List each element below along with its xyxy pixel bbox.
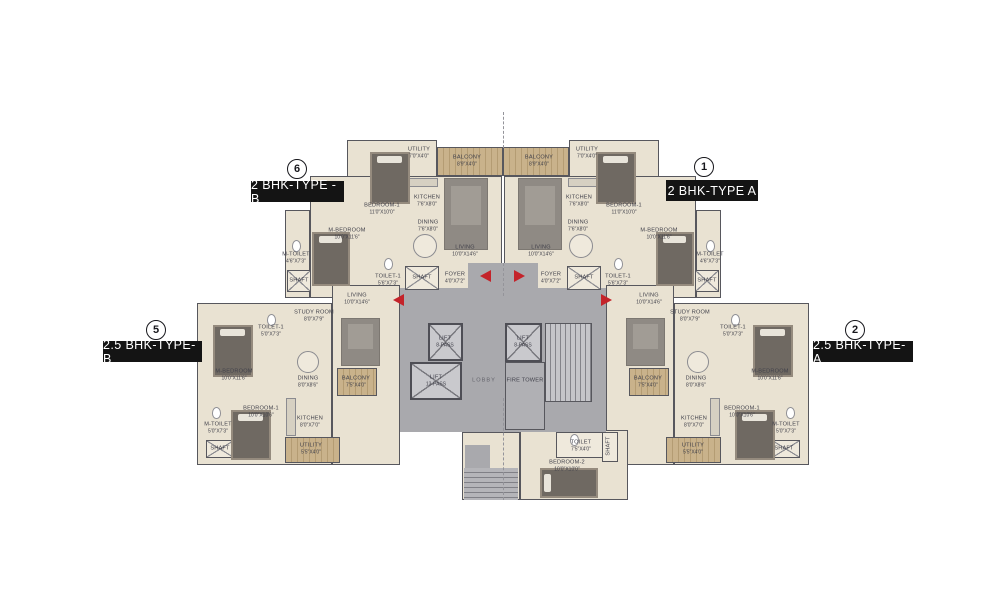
room-dimensions: 10'0"X14'6" bbox=[452, 251, 477, 257]
room-label: TOILET-15'6"X7'3" bbox=[605, 274, 631, 287]
room-dimensions: 7'5"X4'0" bbox=[634, 382, 662, 388]
bed-pillow bbox=[544, 474, 551, 492]
room-name: SHAFT bbox=[574, 275, 593, 282]
room-name: M-TOILET bbox=[282, 252, 310, 259]
room-name: TOILET-1 bbox=[258, 325, 284, 332]
room-label: LIFT13-PASS bbox=[426, 375, 446, 388]
living-carpet bbox=[444, 178, 488, 250]
room-label: STUDY ROOM8'0"X7'9" bbox=[670, 310, 710, 323]
room-label: LIVING10'0"X14'6" bbox=[344, 293, 369, 306]
room-name: TOILET-1 bbox=[605, 274, 631, 281]
room-dimensions: 10'0"X11'6" bbox=[751, 375, 788, 381]
kitchen-counter bbox=[710, 398, 720, 436]
room-dimensions: 5'6"X7'3" bbox=[375, 280, 401, 286]
room-dimensions: 5'5"X4'0" bbox=[682, 449, 704, 455]
room-label: M-TOILET5'0"X7'3" bbox=[772, 422, 800, 435]
room-dimensions: 4'6"X7'3" bbox=[696, 258, 724, 264]
room-label: LIFT8-PASS bbox=[436, 336, 453, 349]
room-label: M-TOILET4'6"X7'3" bbox=[282, 252, 310, 265]
room-name: DINING bbox=[686, 376, 707, 383]
room-label: SHAFT bbox=[412, 275, 431, 282]
room-name: BEDROOM-1 bbox=[606, 203, 642, 210]
room-dimensions: 4'0"X7'2" bbox=[445, 278, 465, 284]
room-name: M-TOILET bbox=[696, 252, 724, 259]
entry-arrow bbox=[393, 294, 404, 306]
entry-arrow bbox=[514, 270, 525, 282]
room-dimensions: 10'0"X10'6" bbox=[243, 412, 279, 418]
room-label: UTILITY7'0"X4'0" bbox=[576, 147, 598, 160]
room-label: M-TOILET4'6"X7'3" bbox=[696, 252, 724, 265]
bed-pillow bbox=[377, 156, 401, 163]
room-name: SHAFT bbox=[289, 278, 308, 285]
room-label: M-BEDROOM10'0"X11'6" bbox=[640, 228, 677, 241]
room-name: LIVING bbox=[452, 245, 477, 252]
room-dimensions: 11'0"X10'0" bbox=[606, 209, 642, 215]
room-label: BEDROOM-110'0"X10'6" bbox=[243, 406, 279, 419]
room-name: DINING bbox=[418, 220, 439, 227]
room-name: M-BEDROOM bbox=[751, 369, 788, 376]
room-name: M-BEDROOM bbox=[328, 228, 365, 235]
room-name: LIFT bbox=[436, 336, 453, 343]
room-label: SHAFT bbox=[210, 446, 229, 453]
living-carpet bbox=[341, 318, 380, 366]
room-name: FOYER bbox=[541, 272, 561, 279]
room-name: SHAFT bbox=[210, 446, 229, 453]
room-name: BALCONY bbox=[634, 376, 662, 383]
bed-pillow bbox=[603, 156, 627, 163]
room-label: KITCHEN8'0"X7'0" bbox=[681, 416, 707, 429]
room-label: DINING7'6"X8'0" bbox=[418, 220, 439, 233]
unit-type-text: 2 BHK-TYPE -B bbox=[251, 178, 344, 206]
room-label: SHAFT bbox=[697, 278, 716, 285]
room-name: BALCONY bbox=[342, 376, 370, 383]
room-name: BEDROOM-1 bbox=[243, 406, 279, 413]
room-label: SHAFT bbox=[606, 436, 613, 455]
dining-table bbox=[687, 351, 709, 373]
room-name: FOYER bbox=[445, 272, 465, 279]
unit-type-text: 2 BHK-TYPE A bbox=[668, 184, 757, 198]
room-dimensions: 5'0"X7'3" bbox=[204, 428, 232, 434]
toilet-fixture bbox=[212, 407, 221, 419]
bed bbox=[540, 468, 598, 498]
room-name: SHAFT bbox=[774, 446, 793, 453]
center-dashed-line bbox=[503, 398, 504, 500]
room-name: SHAFT bbox=[697, 278, 716, 285]
unit-type-label: 2 BHK-TYPE A bbox=[666, 180, 758, 201]
toilet-fixture bbox=[706, 240, 715, 252]
room-dimensions: 10'0"X14'6" bbox=[344, 299, 369, 305]
room-name: DINING bbox=[298, 376, 319, 383]
room-dimensions: 8'0"X8'6" bbox=[298, 382, 319, 388]
unit-type-text: 2.5 BHK-TYPE-A bbox=[813, 338, 913, 366]
room-name: LIFT bbox=[514, 336, 531, 343]
fire-tower-room bbox=[505, 362, 545, 430]
room-label: LIFT8-PASS bbox=[514, 336, 531, 349]
bed bbox=[370, 152, 410, 204]
lower-staircase bbox=[464, 468, 518, 500]
room-label: KITCHEN7'6"X8'0" bbox=[414, 195, 440, 208]
toilet-fixture bbox=[292, 240, 301, 252]
room-dimensions: 10'0"X11'6" bbox=[215, 375, 252, 381]
toilet-fixture bbox=[786, 407, 795, 419]
room-label: BEDROOM-210'0"X10'0" bbox=[549, 460, 585, 473]
room-dimensions: 5'0"X7'3" bbox=[772, 428, 800, 434]
room-label: UTILITY5'5"X4'0" bbox=[682, 443, 704, 456]
room-dimensions: 10'0"X14'6" bbox=[636, 299, 661, 305]
room-dimensions: 10'0"X10'0" bbox=[549, 466, 585, 472]
room-name: UTILITY bbox=[682, 443, 704, 450]
room-label: BALCONY7'5"X4'0" bbox=[634, 376, 662, 389]
room-label: UTILITY7'0"X4'0" bbox=[408, 147, 430, 160]
entry-arrow bbox=[601, 294, 612, 306]
room-label: M-BEDROOM10'0"X11'6" bbox=[215, 369, 252, 382]
room-dimensions: 5'0"X7'3" bbox=[258, 331, 284, 337]
room-label: DINING8'0"X8'6" bbox=[686, 376, 707, 389]
room-label: DINING8'0"X8'6" bbox=[298, 376, 319, 389]
room-name: TOILET bbox=[571, 440, 592, 447]
room-dimensions: 4'0"X7'2" bbox=[541, 278, 561, 284]
room-dimensions: 5'5"X4'0" bbox=[300, 449, 322, 455]
unit-number-badge: 6 bbox=[287, 159, 307, 179]
room-name: UTILITY bbox=[576, 147, 598, 154]
room-name: SHAFT bbox=[606, 436, 613, 455]
room-name: LIVING bbox=[636, 293, 661, 300]
room-label: LIVING10'0"X14'6" bbox=[636, 293, 661, 306]
unit-type-text: 2.5 BHK-TYPE-B bbox=[103, 338, 202, 366]
room-name: BALCONY bbox=[453, 155, 481, 162]
room-dimensions: 7'5"X4'0" bbox=[571, 446, 592, 452]
room-label: LOBBY bbox=[472, 378, 496, 385]
room-name: M-BEDROOM bbox=[640, 228, 677, 235]
room-name: UTILITY bbox=[408, 147, 430, 154]
room-dimensions: 7'6"X8'0" bbox=[568, 226, 589, 232]
room-label: KITCHEN8'0"X7'0" bbox=[297, 416, 323, 429]
room-label: BEDROOM-111'0"X10'0" bbox=[606, 203, 642, 216]
living-carpet bbox=[626, 318, 665, 366]
room-label: M-BEDROOM10'0"X11'6" bbox=[328, 228, 365, 241]
staircase bbox=[545, 323, 592, 402]
unit-type-label: 2.5 BHK-TYPE-B bbox=[103, 341, 202, 362]
room-name: BALCONY bbox=[525, 155, 553, 162]
room-name: TOILET-1 bbox=[375, 274, 401, 281]
dining-table bbox=[297, 351, 319, 373]
room-label: FIRE TOWER bbox=[507, 378, 544, 385]
room-dimensions: 13-PASS bbox=[426, 381, 446, 387]
room-name: M-TOILET bbox=[772, 422, 800, 429]
room-label: FOYER4'0"X7'2" bbox=[541, 272, 561, 285]
room-dimensions: 8'9"X4'0" bbox=[453, 161, 481, 167]
toilet-fixture bbox=[384, 258, 393, 270]
center-dashed-line bbox=[503, 263, 504, 296]
room-name: BEDROOM-1 bbox=[364, 203, 400, 210]
room-name: TOILET-1 bbox=[720, 325, 746, 332]
room-label: TOILET-15'6"X7'3" bbox=[375, 274, 401, 287]
toilet-fixture bbox=[614, 258, 623, 270]
kitchen-counter bbox=[286, 398, 296, 436]
room-dimensions: 8'0"X7'9" bbox=[294, 316, 334, 322]
unit-number-badge: 1 bbox=[694, 157, 714, 177]
bed bbox=[596, 152, 636, 204]
room-label: BEDROOM-110'0"X10'6" bbox=[724, 406, 760, 419]
dining-table bbox=[569, 234, 593, 258]
room-dimensions: 8'0"X7'0" bbox=[297, 422, 323, 428]
room-dimensions: 10'0"X14'6" bbox=[528, 251, 553, 257]
room-label: TOILET-15'0"X7'3" bbox=[258, 325, 284, 338]
room-dimensions: 8'0"X7'0" bbox=[681, 422, 707, 428]
room-dimensions: 5'0"X7'3" bbox=[720, 331, 746, 337]
room-dimensions: 8-PASS bbox=[436, 342, 453, 348]
bed-pillow bbox=[220, 329, 244, 336]
room-name: KITCHEN bbox=[297, 416, 323, 423]
room-label: SHAFT bbox=[774, 446, 793, 453]
room-name: STUDY ROOM bbox=[294, 310, 334, 317]
room-dimensions: 7'0"X4'0" bbox=[576, 153, 598, 159]
room-dimensions: 10'0"X10'6" bbox=[724, 412, 760, 418]
living-carpet bbox=[518, 178, 562, 250]
kitchen-counter bbox=[406, 178, 438, 187]
room-dimensions: 4'6"X7'3" bbox=[282, 258, 310, 264]
room-dimensions: 10'0"X11'6" bbox=[328, 234, 365, 240]
room-dimensions: 7'5"X4'0" bbox=[342, 382, 370, 388]
room-label: BALCONY8'9"X4'0" bbox=[525, 155, 553, 168]
room-dimensions: 8'0"X8'6" bbox=[686, 382, 707, 388]
room-dimensions: 8'9"X4'0" bbox=[525, 161, 553, 167]
room-dimensions: 5'6"X7'3" bbox=[605, 280, 631, 286]
room-dimensions: 7'6"X8'0" bbox=[414, 201, 440, 207]
room-name: STUDY ROOM bbox=[670, 310, 710, 317]
bed-pillow bbox=[760, 329, 784, 336]
unit-type-label: 2.5 BHK-TYPE-A bbox=[813, 341, 913, 362]
floor-plan: UTILITY7'0"X4'0"BALCONY8'9"X4'0"BEDROOM-… bbox=[0, 0, 1000, 600]
room-label: TOILET-15'0"X7'3" bbox=[720, 325, 746, 338]
room-name: SHAFT bbox=[412, 275, 431, 282]
room-label: LIVING10'0"X14'6" bbox=[452, 245, 477, 258]
room-label: SHAFT bbox=[289, 278, 308, 285]
room-label: STUDY ROOM8'0"X7'9" bbox=[294, 310, 334, 323]
room-label: DINING7'6"X8'0" bbox=[568, 220, 589, 233]
center-dashed-line bbox=[503, 112, 504, 148]
room-label: M-TOILET5'0"X7'3" bbox=[204, 422, 232, 435]
unit-type-label: 2 BHK-TYPE -B bbox=[251, 181, 344, 202]
room-label: KITCHEN7'6"X8'0" bbox=[566, 195, 592, 208]
room-name: KITCHEN bbox=[566, 195, 592, 202]
room-dimensions: 11'0"X10'0" bbox=[364, 209, 400, 215]
entry-arrow bbox=[480, 270, 491, 282]
room-name: UTILITY bbox=[300, 443, 322, 450]
floor-plan-canvas: UTILITY7'0"X4'0"BALCONY8'9"X4'0"BEDROOM-… bbox=[0, 0, 1000, 600]
room-label: SHAFT bbox=[574, 275, 593, 282]
room-name: M-TOILET bbox=[204, 422, 232, 429]
room-dimensions: 8-PASS bbox=[514, 342, 531, 348]
room-name: KITCHEN bbox=[681, 416, 707, 423]
room-name: KITCHEN bbox=[414, 195, 440, 202]
room-label: BALCONY8'9"X4'0" bbox=[453, 155, 481, 168]
room-dimensions: 10'0"X11'6" bbox=[640, 234, 677, 240]
room-name: LOBBY bbox=[472, 378, 496, 385]
room-dimensions: 7'0"X4'0" bbox=[408, 153, 430, 159]
room-name: LIFT bbox=[426, 375, 446, 382]
room-name: BEDROOM-1 bbox=[724, 406, 760, 413]
room-label: M-BEDROOM10'0"X11'6" bbox=[751, 369, 788, 382]
room-label: BALCONY7'5"X4'0" bbox=[342, 376, 370, 389]
room-dimensions: 7'6"X8'0" bbox=[566, 201, 592, 207]
dining-table bbox=[413, 234, 437, 258]
room-name: LIVING bbox=[344, 293, 369, 300]
room-label: FOYER4'0"X7'2" bbox=[445, 272, 465, 285]
room-label: UTILITY5'5"X4'0" bbox=[300, 443, 322, 456]
room-label: BEDROOM-111'0"X10'0" bbox=[364, 203, 400, 216]
room-dimensions: 8'0"X7'9" bbox=[670, 316, 710, 322]
room-name: DINING bbox=[568, 220, 589, 227]
room-label: LIVING10'0"X14'6" bbox=[528, 245, 553, 258]
room-name: M-BEDROOM bbox=[215, 369, 252, 376]
room-name: FIRE TOWER bbox=[507, 378, 544, 385]
room-name: LIVING bbox=[528, 245, 553, 252]
room-dimensions: 7'6"X8'0" bbox=[418, 226, 439, 232]
room-name: BEDROOM-2 bbox=[549, 460, 585, 467]
room-label: TOILET7'5"X4'0" bbox=[571, 440, 592, 453]
